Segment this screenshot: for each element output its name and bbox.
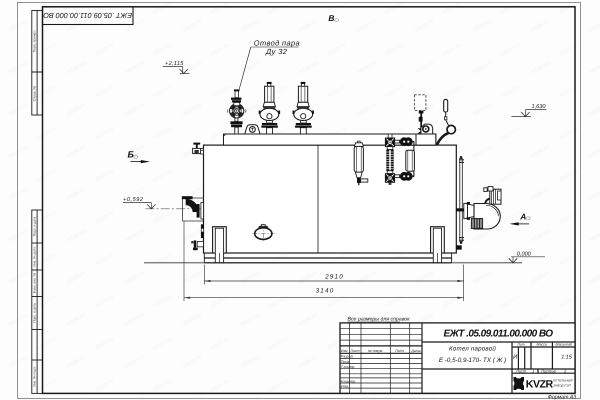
svg-text:А: А <box>519 211 526 221</box>
svg-text:3140: 3140 <box>316 288 335 295</box>
svg-text:2910: 2910 <box>324 274 344 281</box>
svg-text:Лист: Лист <box>515 369 527 374</box>
svg-text:Утв.: Утв. <box>341 384 349 388</box>
svg-text:1:15: 1:15 <box>561 354 572 360</box>
svg-text:Формат А3: Формат А3 <box>548 395 576 400</box>
svg-text:Масса: Масса <box>537 343 547 347</box>
svg-text:Перв. примен.: Перв. примен. <box>33 30 37 53</box>
svg-text:Инв. № подл.: Инв. № подл. <box>33 366 37 387</box>
svg-text:+0,592: +0,592 <box>123 197 144 203</box>
svg-text:Разраб.: Разраб. <box>341 355 354 359</box>
svg-text:Е -0,5-0,9-170- ТХ ( Ж ): Е -0,5-0,9-170- ТХ ( Ж ) <box>439 357 506 364</box>
svg-text:Масштаб: Масштаб <box>556 343 573 347</box>
svg-text:Ду 32: Ду 32 <box>265 47 287 56</box>
svg-text:Б: Б <box>128 149 135 159</box>
svg-text:Т.контр.: Т.контр. <box>341 365 356 369</box>
svg-text:1: 1 <box>532 369 534 374</box>
svg-text:Н.контр.: Н.контр. <box>341 379 356 383</box>
svg-text:ЗАВОД РЭП: ЗАВОД РЭП <box>553 384 572 388</box>
svg-text:Взам. инв. №: Взам. инв. № <box>33 272 37 293</box>
svg-text:Пров.: Пров. <box>341 360 350 364</box>
svg-text:Подп. и дата: Подп. и дата <box>33 303 37 323</box>
svg-text:№ докум.: № докум. <box>368 349 383 353</box>
svg-text:ЕЖТ .05.09.011.00.000 ВО: ЕЖТ .05.09.011.00.000 ВО <box>443 328 553 339</box>
svg-text:Дата: Дата <box>410 349 420 353</box>
svg-text:Инв. № дубл.: Инв. № дубл. <box>33 246 37 266</box>
svg-text:Лист: Лист <box>349 349 359 353</box>
svg-text:KVZR: KVZR <box>526 378 554 390</box>
svg-text:Изм.: Изм. <box>341 349 348 353</box>
svg-text:Котел паровой: Котел паровой <box>449 346 496 353</box>
svg-text:В: В <box>328 13 334 23</box>
svg-text:Листов: Листов <box>540 369 556 374</box>
svg-text:Лит.: Лит. <box>516 343 525 347</box>
svg-text:1,630: 1,630 <box>532 104 547 110</box>
svg-text:ЕЖТ .05.09.011.00.000 ВО: ЕЖТ .05.09.011.00.000 ВО <box>43 11 132 20</box>
svg-text:КОТЕЛЬНЫЙ: КОТЕЛЬНЫЙ <box>553 379 573 383</box>
svg-text:Подп.: Подп. <box>395 349 404 353</box>
svg-text:Справ. №: Справ. № <box>33 85 37 101</box>
svg-text:Подп. и дата: Подп. и дата <box>33 217 37 237</box>
